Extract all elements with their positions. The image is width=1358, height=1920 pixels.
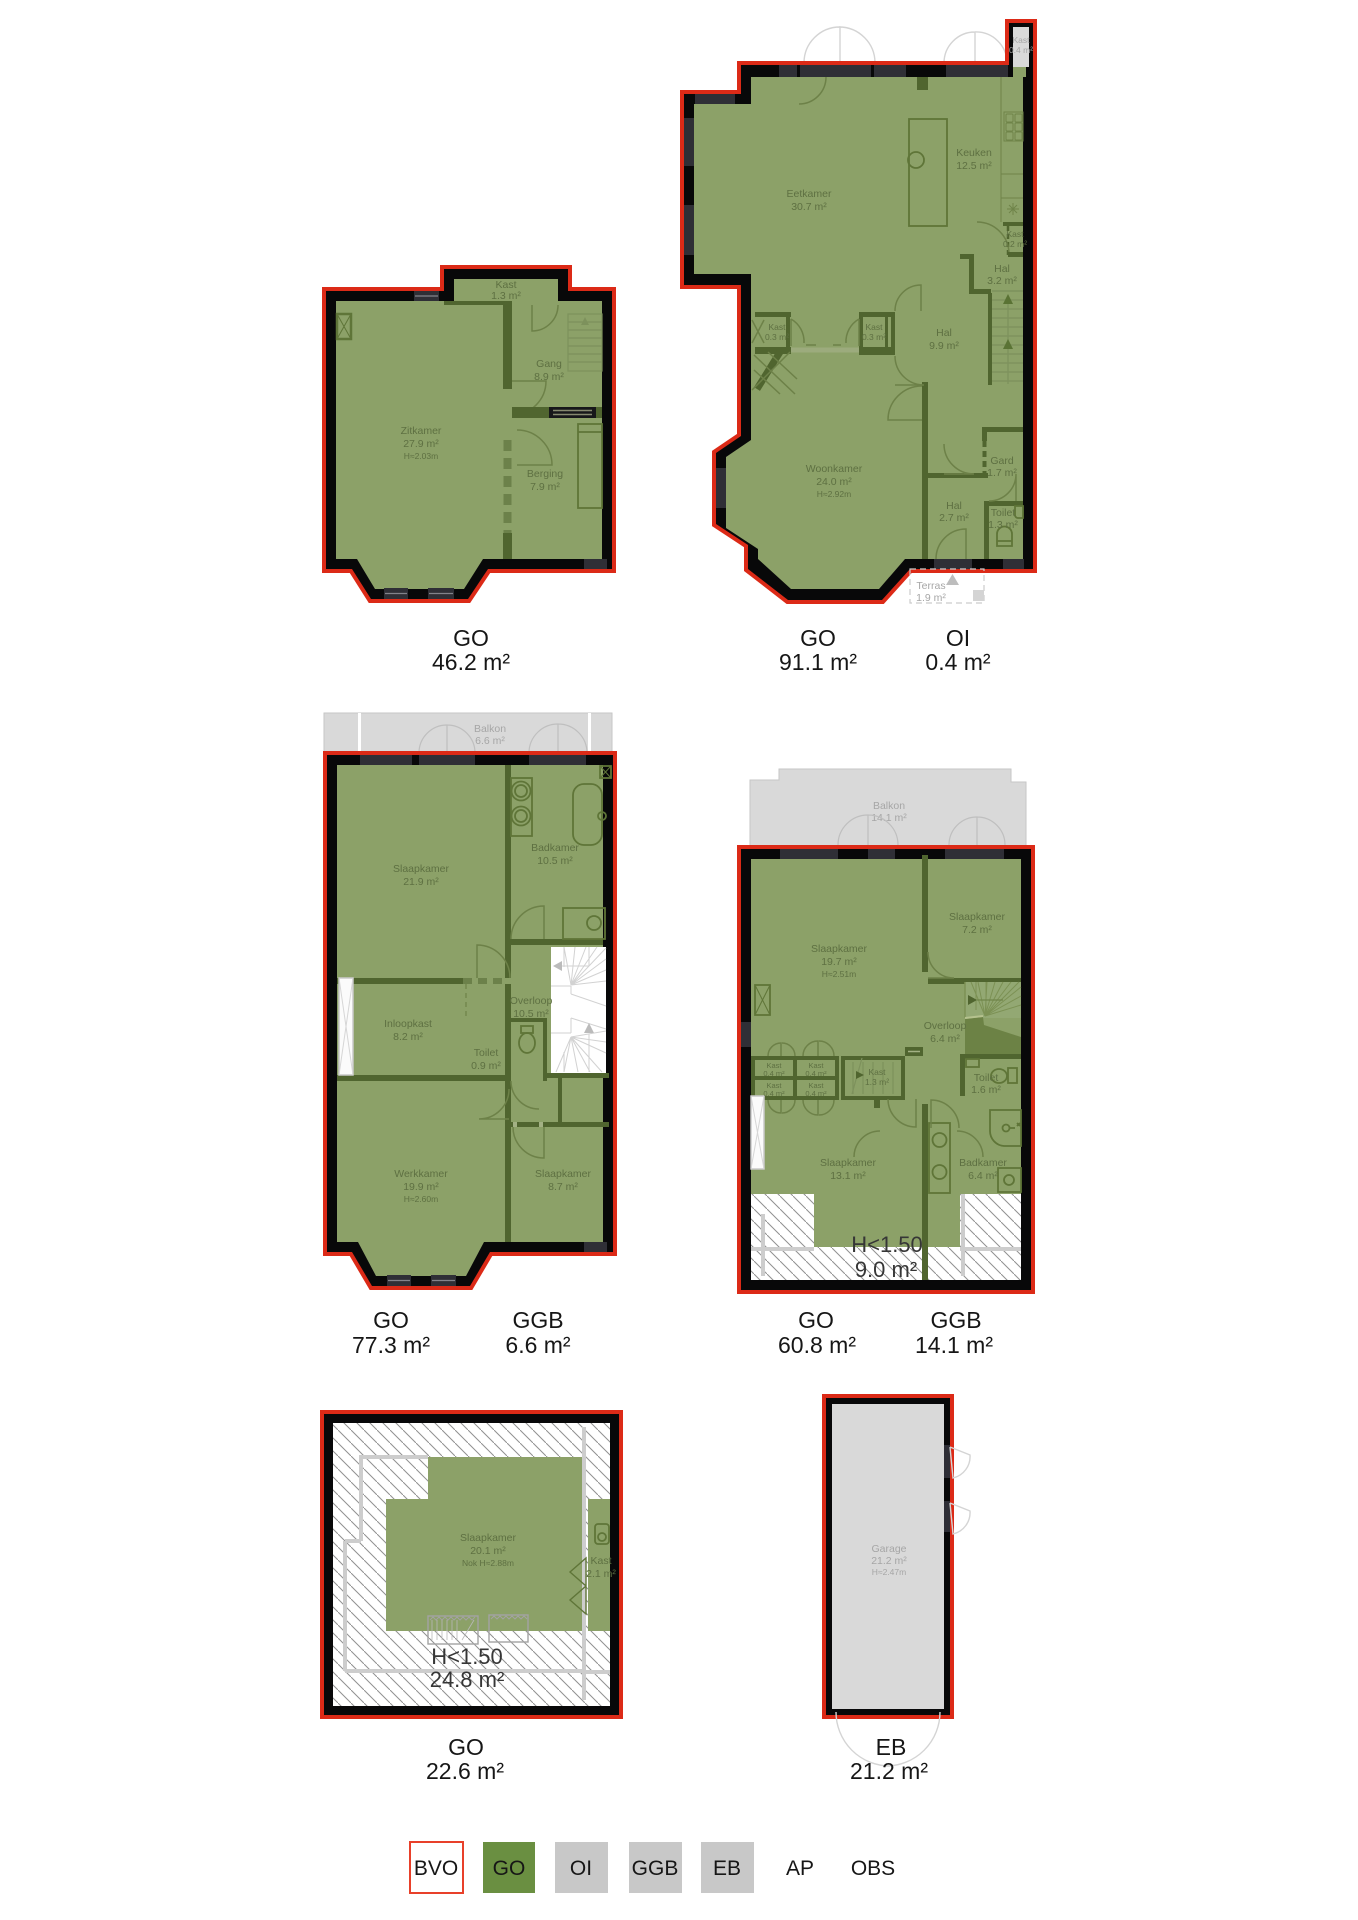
svg-text:Hal: Hal <box>994 263 1010 275</box>
svg-text:2.7 m²: 2.7 m² <box>939 512 969 524</box>
svg-text:0.4 m²: 0.4 m² <box>1009 45 1033 55</box>
svg-text:GO: GO <box>373 1307 409 1333</box>
svg-text:0.9 m²: 0.9 m² <box>471 1060 501 1072</box>
svg-text:9.0 m²: 9.0 m² <box>855 1257 917 1282</box>
svg-text:Badkamer: Badkamer <box>531 842 579 854</box>
svg-text:2.1 m²: 2.1 m² <box>586 1568 616 1580</box>
svg-text:9.9 m²: 9.9 m² <box>929 340 959 352</box>
svg-text:0.2 m²: 0.2 m² <box>1003 239 1027 249</box>
svg-text:0.3 m²: 0.3 m² <box>862 332 886 342</box>
svg-text:Toilet: Toilet <box>974 1072 999 1084</box>
svg-text:Slaapkamer: Slaapkamer <box>949 911 1006 923</box>
svg-text:OBS: OBS <box>851 1857 895 1880</box>
svg-text:10.5 m²: 10.5 m² <box>537 855 573 867</box>
svg-text:8.9 m²: 8.9 m² <box>534 371 564 383</box>
svg-text:21.9 m²: 21.9 m² <box>403 876 439 888</box>
svg-text:0.4 m²: 0.4 m² <box>805 1089 827 1098</box>
svg-text:H≈2.60m: H≈2.60m <box>404 1194 438 1204</box>
svg-text:Slaapkamer: Slaapkamer <box>460 1532 517 1544</box>
svg-text:8.2 m²: 8.2 m² <box>393 1031 423 1043</box>
svg-text:6.6 m²: 6.6 m² <box>475 735 505 747</box>
svg-text:GO: GO <box>800 625 836 651</box>
svg-text:H≈2.03m: H≈2.03m <box>404 451 438 461</box>
svg-text:0.4 m²: 0.4 m² <box>763 1069 785 1078</box>
svg-text:Gang: Gang <box>536 358 562 370</box>
svg-text:Berging: Berging <box>527 468 563 480</box>
svg-text:19.7 m²: 19.7 m² <box>821 956 857 968</box>
svg-text:0.4 m²: 0.4 m² <box>763 1089 785 1098</box>
svg-text:Badkamer: Badkamer <box>959 1157 1007 1169</box>
svg-text:27.9 m²: 27.9 m² <box>403 438 439 450</box>
svg-text:GO: GO <box>798 1307 834 1333</box>
svg-text:Inloopkast: Inloopkast <box>384 1018 432 1030</box>
svg-text:Kast: Kast <box>1006 229 1024 239</box>
svg-text:AP: AP <box>786 1857 814 1880</box>
svg-text:OI: OI <box>946 625 970 651</box>
svg-text:Kast: Kast <box>1012 35 1030 45</box>
svg-text:0.4 m²: 0.4 m² <box>925 649 991 675</box>
svg-text:H≈2.47m: H≈2.47m <box>872 1567 906 1577</box>
svg-text:OI: OI <box>570 1857 592 1880</box>
svg-text:Keuken: Keuken <box>956 147 992 159</box>
svg-text:60.8 m²: 60.8 m² <box>778 1332 856 1358</box>
svg-text:3.2 m²: 3.2 m² <box>987 275 1017 287</box>
svg-text:Terras: Terras <box>916 580 945 592</box>
svg-text:BVO: BVO <box>414 1857 458 1880</box>
svg-text:21.2 m²: 21.2 m² <box>871 1555 907 1567</box>
svg-text:Kast: Kast <box>590 1555 611 1567</box>
svg-text:21.2 m²: 21.2 m² <box>850 1758 928 1784</box>
svg-text:77.3 m²: 77.3 m² <box>352 1332 430 1358</box>
svg-text:H≈2.92m: H≈2.92m <box>817 489 851 499</box>
svg-text:Balkon: Balkon <box>474 723 506 735</box>
svg-text:GGB: GGB <box>632 1857 679 1880</box>
svg-text:12.5 m²: 12.5 m² <box>956 160 992 172</box>
svg-text:1.6 m²: 1.6 m² <box>971 1084 1001 1096</box>
svg-text:10.5 m²: 10.5 m² <box>513 1008 549 1020</box>
svg-text:GGB: GGB <box>512 1307 563 1333</box>
svg-text:46.2 m²: 46.2 m² <box>432 649 510 675</box>
svg-text:Werkkamer: Werkkamer <box>394 1168 448 1180</box>
svg-text:6.4 m²: 6.4 m² <box>968 1170 998 1182</box>
svg-text:6.6 m²: 6.6 m² <box>505 1332 571 1358</box>
svg-text:H<1.50: H<1.50 <box>431 1644 503 1669</box>
svg-text:Garage: Garage <box>871 1543 906 1555</box>
svg-text:Overloop: Overloop <box>924 1020 967 1032</box>
svg-text:14.1 m²: 14.1 m² <box>915 1332 993 1358</box>
svg-text:H≈2.51m: H≈2.51m <box>822 969 856 979</box>
svg-text:Kast: Kast <box>868 1067 886 1077</box>
svg-text:30.7 m²: 30.7 m² <box>791 201 827 213</box>
svg-text:Slaapkamer: Slaapkamer <box>393 863 450 875</box>
svg-text:91.1 m²: 91.1 m² <box>779 649 857 675</box>
svg-text:1.9 m²: 1.9 m² <box>916 592 946 604</box>
svg-text:EB: EB <box>713 1857 741 1880</box>
svg-text:GGB: GGB <box>930 1307 981 1333</box>
svg-text:14.1 m²: 14.1 m² <box>871 812 907 824</box>
svg-text:8.7 m²: 8.7 m² <box>548 1181 578 1193</box>
svg-text:Gard: Gard <box>990 455 1014 467</box>
svg-text:Zitkamer: Zitkamer <box>401 425 442 437</box>
svg-text:Balkon: Balkon <box>873 800 905 812</box>
svg-text:22.6 m²: 22.6 m² <box>426 1758 504 1784</box>
svg-text:Toilet: Toilet <box>991 507 1016 519</box>
svg-text:Slaapkamer: Slaapkamer <box>535 1168 592 1180</box>
svg-text:1.3 m²: 1.3 m² <box>491 290 521 302</box>
svg-text:1.3 m²: 1.3 m² <box>988 519 1018 531</box>
svg-text:Slaapkamer: Slaapkamer <box>811 943 868 955</box>
svg-text:7.2 m²: 7.2 m² <box>962 924 992 936</box>
svg-text:0.3 m²: 0.3 m² <box>765 332 789 342</box>
svg-text:6.4 m²: 6.4 m² <box>930 1033 960 1045</box>
svg-text:GO: GO <box>448 1734 484 1760</box>
svg-text:Hal: Hal <box>946 500 962 512</box>
svg-text:H<1.50: H<1.50 <box>851 1232 923 1257</box>
svg-text:Overloop: Overloop <box>510 995 553 1007</box>
svg-text:Nok H≈2.88m: Nok H≈2.88m <box>462 1558 514 1568</box>
svg-text:1.3 m²: 1.3 m² <box>865 1077 889 1087</box>
svg-text:13.1 m²: 13.1 m² <box>830 1170 866 1182</box>
svg-text:Woonkamer: Woonkamer <box>806 463 863 475</box>
svg-text:24.0 m²: 24.0 m² <box>816 476 852 488</box>
svg-text:EB: EB <box>876 1734 907 1760</box>
svg-text:20.1 m²: 20.1 m² <box>470 1545 506 1557</box>
svg-text:0.4 m²: 0.4 m² <box>805 1069 827 1078</box>
svg-text:GO: GO <box>493 1857 526 1880</box>
svg-text:7.9 m²: 7.9 m² <box>530 481 560 493</box>
svg-text:Toilet: Toilet <box>474 1047 499 1059</box>
svg-text:24.8 m²: 24.8 m² <box>430 1667 505 1692</box>
svg-text:Slaapkamer: Slaapkamer <box>820 1157 877 1169</box>
svg-text:Kast: Kast <box>768 322 786 332</box>
svg-text:GO: GO <box>453 625 489 651</box>
svg-text:Eetkamer: Eetkamer <box>787 188 832 200</box>
svg-text:19.9 m²: 19.9 m² <box>403 1181 439 1193</box>
svg-text:1.7 m²: 1.7 m² <box>987 467 1017 479</box>
svg-text:Kast: Kast <box>865 322 883 332</box>
svg-text:Hal: Hal <box>936 327 952 339</box>
